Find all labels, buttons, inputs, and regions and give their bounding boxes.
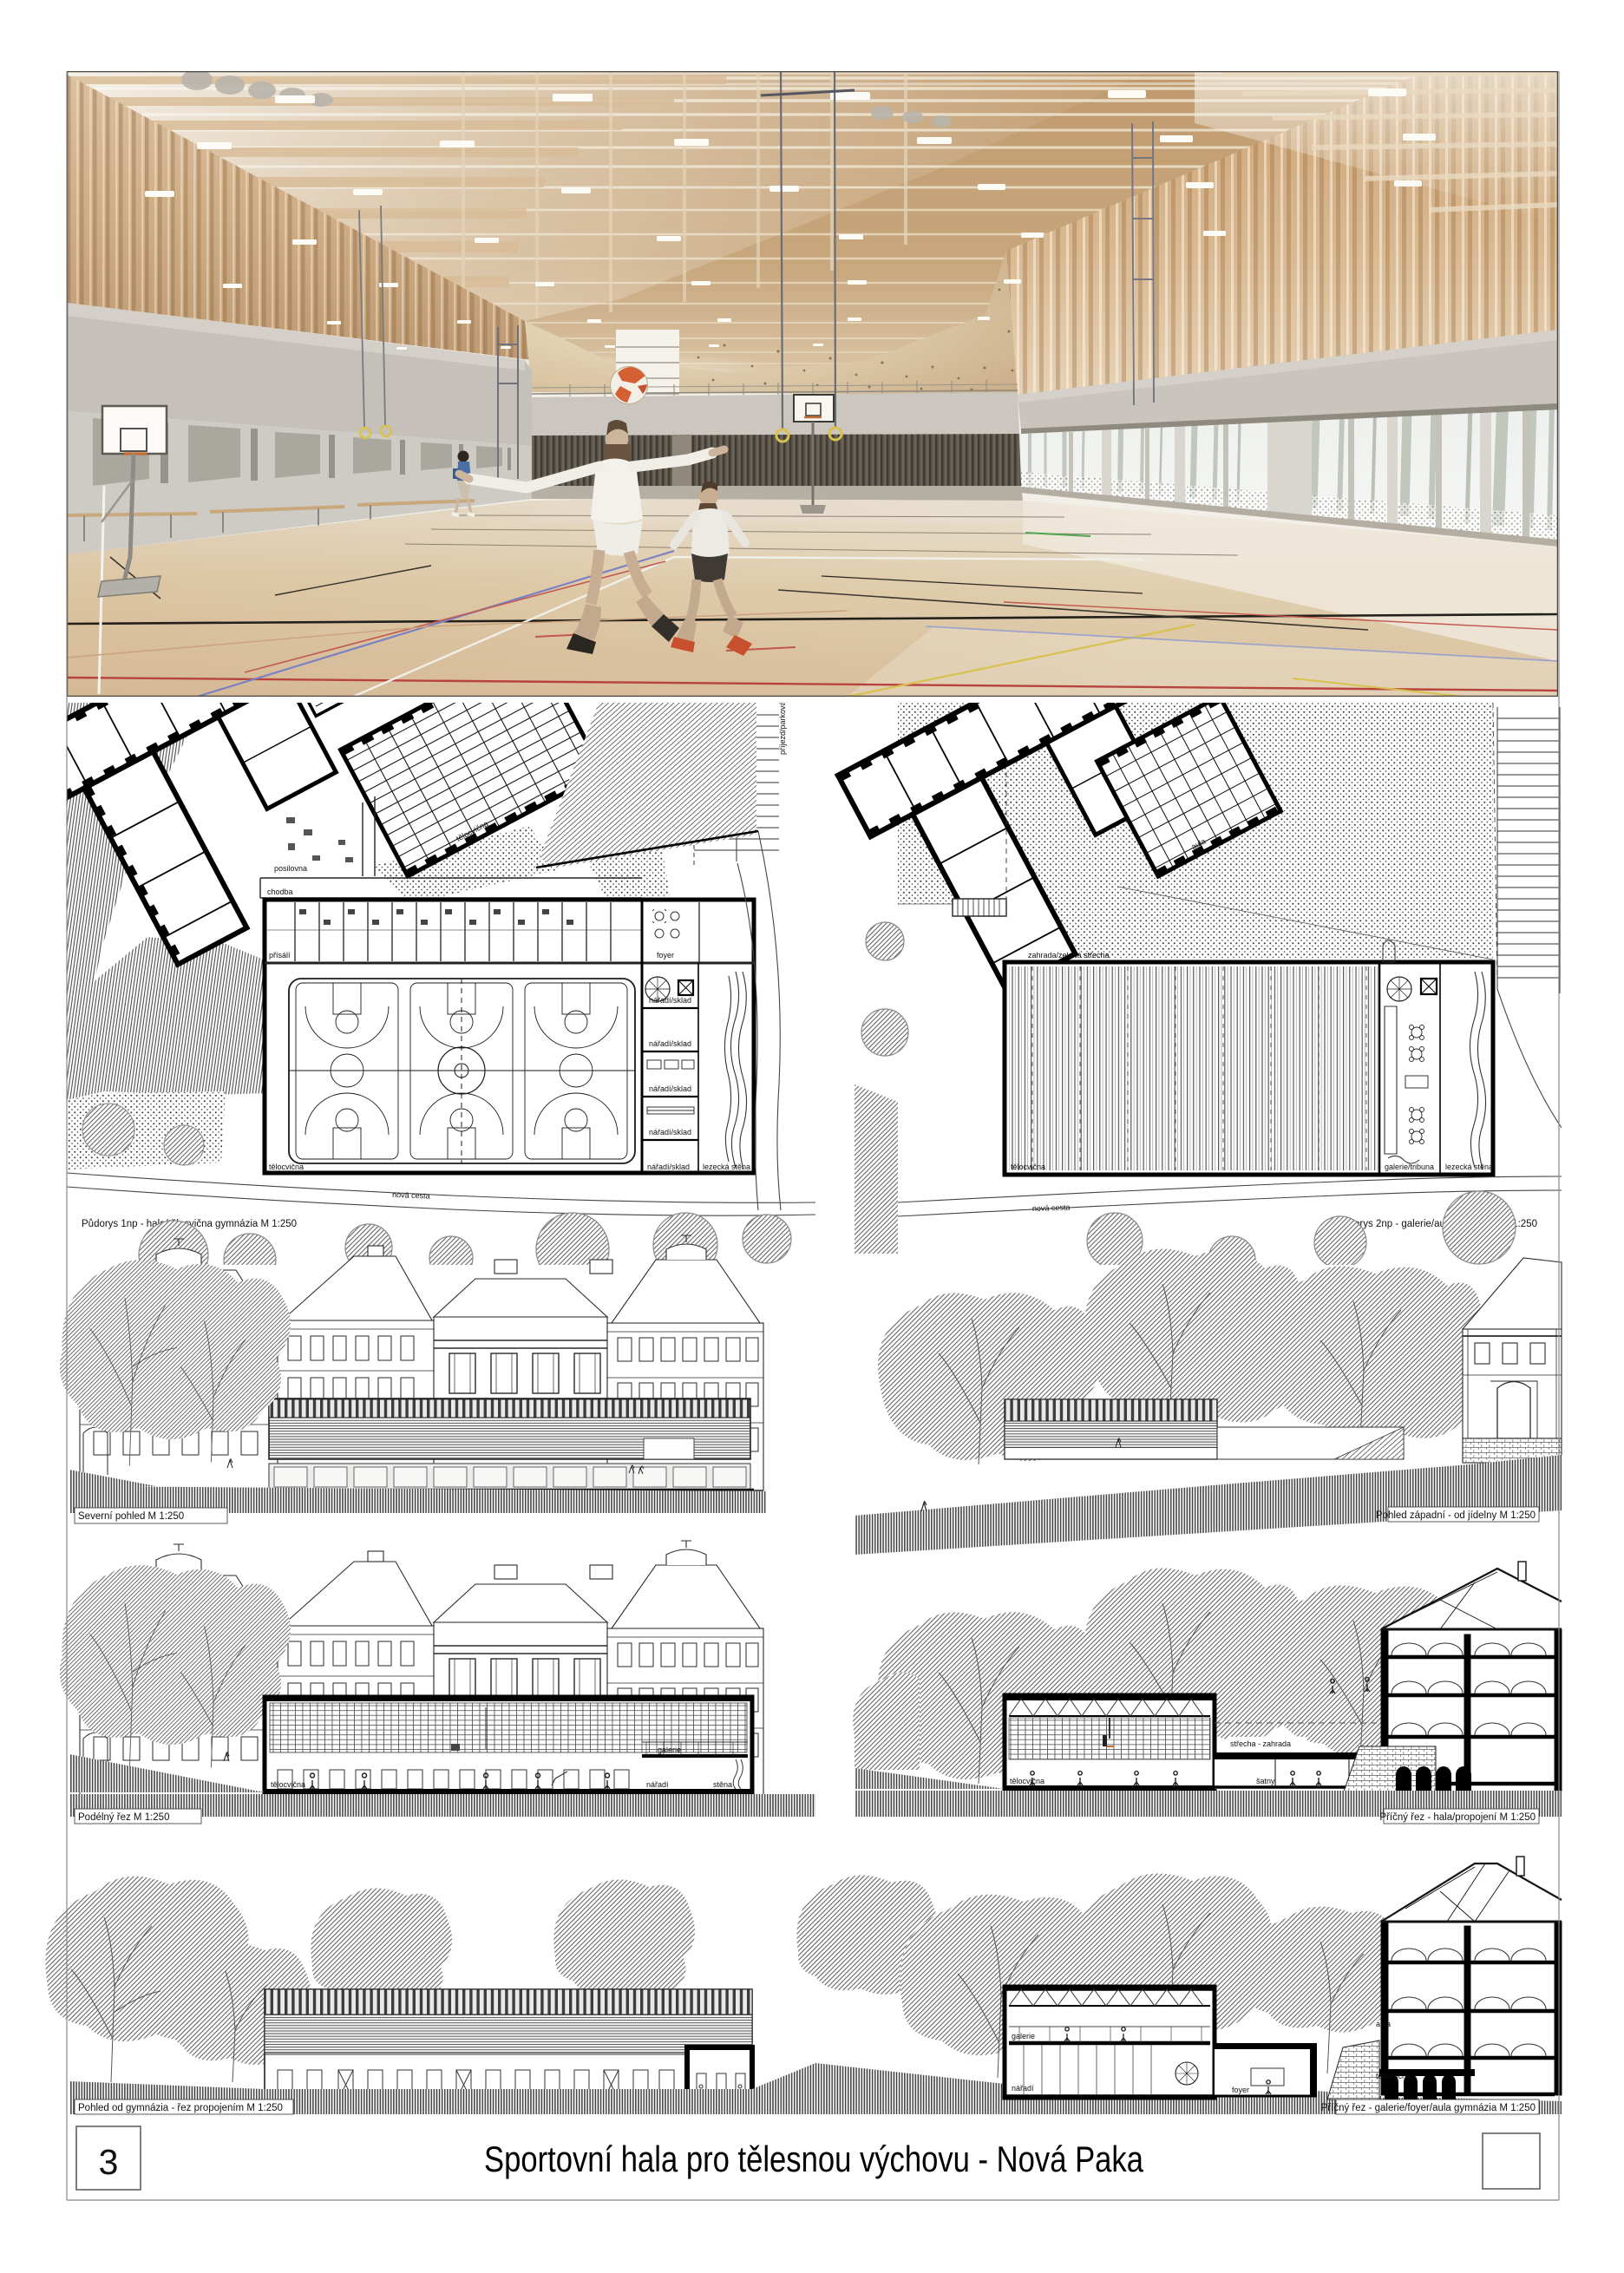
- svg-text:nářadí/sklad: nářadí/sklad: [649, 1084, 691, 1093]
- svg-text:zahrada/zelená střecha: zahrada/zelená střecha: [1028, 951, 1110, 960]
- svg-text:stěna: stěna: [713, 1780, 732, 1789]
- svg-text:galerie: galerie: [1012, 2032, 1035, 2040]
- svg-text:nová cesta: nová cesta: [1032, 1202, 1071, 1213]
- svg-text:nářadí: nářadí: [1012, 2084, 1034, 2093]
- svg-text:tělocvična: tělocvična: [1010, 1777, 1044, 1785]
- svg-text:šatny: šatny: [1256, 1777, 1275, 1785]
- svg-text:Sportovní hala pro tělesnou vý: Sportovní hala pro tělesnou výchovu - No…: [484, 2139, 1144, 2179]
- svg-text:střecha - zahrada: střecha - zahrada: [1230, 1739, 1291, 1748]
- svg-text:nářadí/sklad: nářadí/sklad: [649, 1128, 691, 1136]
- svg-text:3: 3: [99, 2142, 119, 2182]
- svg-text:posilovna: posilovna: [274, 864, 307, 873]
- svg-text:foyer: foyer: [1232, 2086, 1249, 2094]
- svg-text:aula: aula: [1376, 2020, 1391, 2028]
- svg-text:Pohled západní - od jídelny M: Pohled západní - od jídelny M 1:250: [1376, 1510, 1536, 1521]
- svg-text:foyer: foyer: [657, 951, 674, 960]
- svg-text:nářadí: nářadí: [646, 1780, 669, 1789]
- svg-text:přísálí: přísálí: [269, 951, 291, 960]
- svg-text:příjezd/parkování: příjezd/parkování: [778, 694, 787, 755]
- svg-text:tělocvična: tělocvična: [1011, 1163, 1045, 1171]
- svg-text:Příčný řez - galerie/foyer/aul: Příčný řez - galerie/foyer/aula gymnázia…: [1321, 2103, 1536, 2113]
- svg-text:nářadí/sklad: nářadí/sklad: [649, 1039, 691, 1048]
- svg-text:chodba: chodba: [267, 888, 293, 896]
- svg-text:Severní pohled M 1:250: Severní pohled M 1:250: [78, 1511, 184, 1522]
- svg-text:nářadí/sklad: nářadí/sklad: [649, 996, 691, 1005]
- svg-text:tělocvična: tělocvična: [271, 1780, 305, 1789]
- svg-text:lezecká stěna: lezecká stěna: [1445, 1163, 1493, 1171]
- svg-text:nářadí/sklad: nářadí/sklad: [647, 1163, 690, 1171]
- svg-text:Podélný řez M 1:250: Podélný řez M 1:250: [78, 1812, 169, 1823]
- svg-text:galerie: galerie: [658, 1746, 681, 1754]
- svg-text:galerie/tribuna: galerie/tribuna: [1385, 1163, 1434, 1171]
- svg-text:nová cesta: nová cesta: [392, 1190, 430, 1201]
- svg-text:Příčný řez - hala/propojení M: Příčný řez - hala/propojení M 1:250: [1379, 1812, 1536, 1823]
- svg-text:Pohled od gymnázia - řez propo: Pohled od gymnázia - řez propojením M 1:…: [78, 2103, 283, 2113]
- svg-text:tělocvična: tělocvična: [1376, 2072, 1411, 2080]
- svg-text:lezecká stěna: lezecká stěna: [703, 1163, 750, 1171]
